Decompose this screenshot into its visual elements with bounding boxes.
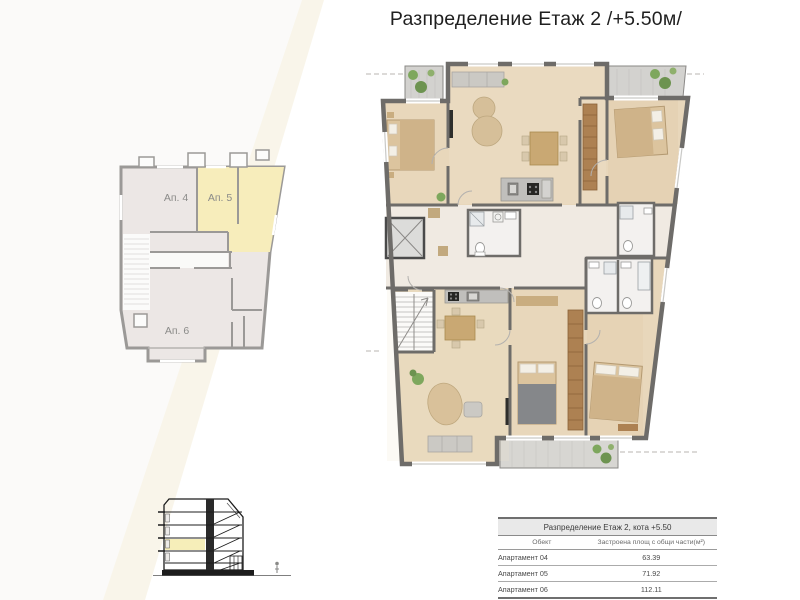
section-drawing	[148, 481, 296, 585]
apartment-name-cell: Апартамент 04	[498, 550, 586, 566]
area-table: Разпределение Етаж 2, кота +5.50 Обект З…	[498, 517, 717, 599]
table-row: Апартамент 06 112.11	[498, 582, 717, 598]
kitchen-counter	[501, 178, 553, 201]
wardrobe	[583, 104, 597, 190]
person-figure	[275, 562, 279, 573]
apartment-name-cell: Апартамент 05	[498, 566, 586, 582]
overview-plan: Ап. 4 Ап. 5 Ап. 6	[110, 143, 300, 383]
table-title: Разпределение Етаж 2, кота +5.50	[498, 519, 717, 536]
bathroom-top-right	[618, 203, 654, 256]
sofa	[428, 436, 472, 452]
stairwell	[393, 292, 434, 352]
bedroom-ne	[614, 106, 667, 157]
section-floor-highlight	[165, 539, 205, 550]
area-value-cell: 71.92	[586, 566, 717, 582]
sofa	[452, 72, 504, 87]
apartment-name-cell: Апартамент 06	[498, 582, 586, 598]
wardrobe	[568, 310, 583, 430]
dining-table	[530, 132, 558, 165]
apartment-label: Ап. 4	[164, 192, 189, 204]
overview-balcony-stubs	[139, 150, 269, 167]
column-header-area: Застроена площ с общи части(м²)	[586, 536, 717, 550]
section-outline	[164, 499, 243, 570]
dining-table	[445, 316, 475, 340]
page-title: Разпределение Етаж 2 /+5.50м/	[378, 8, 694, 31]
area-value-cell: 112.11	[586, 582, 717, 598]
table-row: Апартамент 04 63.39	[498, 550, 717, 566]
plant-icon	[437, 193, 446, 202]
column-header-object: Обект	[498, 536, 586, 550]
apartment-label: Ап. 5	[208, 192, 233, 204]
overview-stairwell	[123, 234, 150, 310]
plant-icon	[502, 79, 509, 86]
section-core	[206, 499, 214, 570]
overview-corridor	[150, 253, 228, 268]
bench	[618, 424, 638, 431]
apartment-label: Ап. 6	[165, 325, 190, 337]
overview-footprint	[121, 150, 284, 361]
table-row: Апартамент 05 71.92	[498, 566, 717, 582]
bathroom-pair	[586, 258, 652, 313]
south-terrace	[500, 440, 618, 468]
armchair	[464, 402, 482, 417]
area-value-cell: 63.39	[586, 550, 717, 566]
bathroom-top-center	[468, 210, 520, 256]
main-floor-plan	[366, 50, 706, 486]
tv	[450, 110, 454, 138]
kitchen-counter	[445, 290, 508, 303]
section-stairs	[214, 512, 240, 570]
floorplan-page: { "page": { "title": "Разпределение Етаж…	[0, 0, 800, 600]
